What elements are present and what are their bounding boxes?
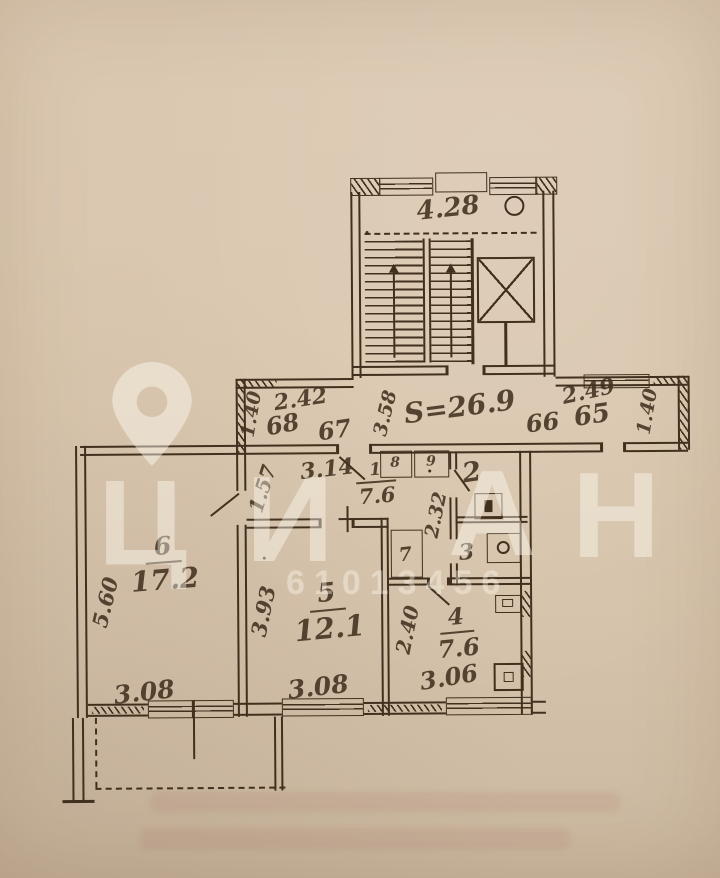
watermark-letter: Ц <box>98 462 187 584</box>
dimension-tick <box>339 518 357 520</box>
apartment-number-67: 67 <box>316 416 353 445</box>
stove-burner <box>504 672 514 682</box>
room5-area: 12.1 <box>284 609 376 648</box>
stairwell-bottom-wall <box>485 365 555 375</box>
balcony-outline <box>95 787 285 790</box>
scanned-floor-plan-page: 4.28 1.40 <box>0 0 720 878</box>
hall-number: 1 <box>355 460 396 484</box>
kitchen-window <box>446 697 532 716</box>
door-jamb <box>482 365 485 375</box>
elevator-cross-line <box>479 259 533 321</box>
corridor-area-label: S=26.9 <box>402 386 517 428</box>
ink-dot <box>366 231 369 234</box>
apartment-number-66: 66 <box>525 409 561 437</box>
closet-9-number: 9 <box>426 454 436 468</box>
room5-left-dim: 3.93 <box>246 578 279 645</box>
wall-hatched <box>522 651 530 677</box>
wall <box>504 323 507 367</box>
kitchen-number: 4 <box>438 604 475 635</box>
wall <box>471 238 475 364</box>
floor-plan-drawing: 4.28 1.40 <box>0 0 720 878</box>
wall-hatched <box>522 591 530 617</box>
stairwell-left-wall <box>350 192 361 378</box>
apartment-number-65: 65 <box>572 400 612 431</box>
vent-circle-symbol <box>504 196 524 216</box>
kitchen-left-dim: 2.40 <box>392 598 424 661</box>
corridor-right-wall <box>678 376 691 450</box>
room5-bottom-dim: 3.08 <box>287 671 350 703</box>
watermark-id-number: 61013456 <box>286 564 509 603</box>
hall-area: 7.6 <box>348 483 406 509</box>
closet7-number: 7 <box>398 545 413 565</box>
room6-door-leaf <box>210 493 239 517</box>
cian-pin-watermark-icon <box>112 362 192 466</box>
balcony-divider <box>193 717 195 759</box>
bottom-wall <box>234 703 282 716</box>
balcony-side-wall <box>274 717 284 791</box>
room6-right-wall <box>236 445 246 491</box>
kitchen-area: 7.6 <box>428 633 490 664</box>
door-jamb <box>336 444 339 454</box>
corridor-stair-side-dim: 3.58 <box>370 382 403 445</box>
balcony-door-jamb <box>192 700 195 718</box>
wall-hatched <box>368 704 442 712</box>
watermark-letter: А <box>448 452 536 574</box>
apartment-number-68: 68 <box>264 410 301 440</box>
wall-stub <box>72 718 85 802</box>
kitchen-bottom-dim: 3.06 <box>418 661 480 694</box>
bleed-through-text <box>140 828 570 850</box>
stairwell-top-dimension: 4.28 <box>415 192 481 225</box>
balcony-outline <box>95 718 97 788</box>
stairwell-window <box>379 177 433 195</box>
hall-label: 1 7.6 <box>347 460 406 509</box>
corridor-right-depth-dim: 1.40 <box>633 380 662 442</box>
stove-fixture <box>494 663 524 691</box>
stairwell-right-wall <box>542 191 555 377</box>
room6-bottom-dim: 3.08 <box>113 676 176 708</box>
room5-right-wall <box>381 518 390 716</box>
bottom-wall <box>532 701 546 714</box>
watermark-letter: И <box>246 458 334 580</box>
bleed-through-text <box>150 792 620 812</box>
stairwell-bottom-wall <box>351 365 445 376</box>
stair-landing-line <box>365 232 537 235</box>
apartment-left-wall <box>75 446 88 718</box>
ink-dot <box>428 470 431 473</box>
elevator-shaft <box>477 257 535 323</box>
wall-stub-foot <box>63 800 95 803</box>
watermark-letter: Н <box>572 454 660 576</box>
door-jamb <box>445 365 448 375</box>
stairwell-window <box>435 172 487 192</box>
kitchen-label: 4 7.6 <box>425 603 490 664</box>
stairwell-window <box>489 177 537 195</box>
